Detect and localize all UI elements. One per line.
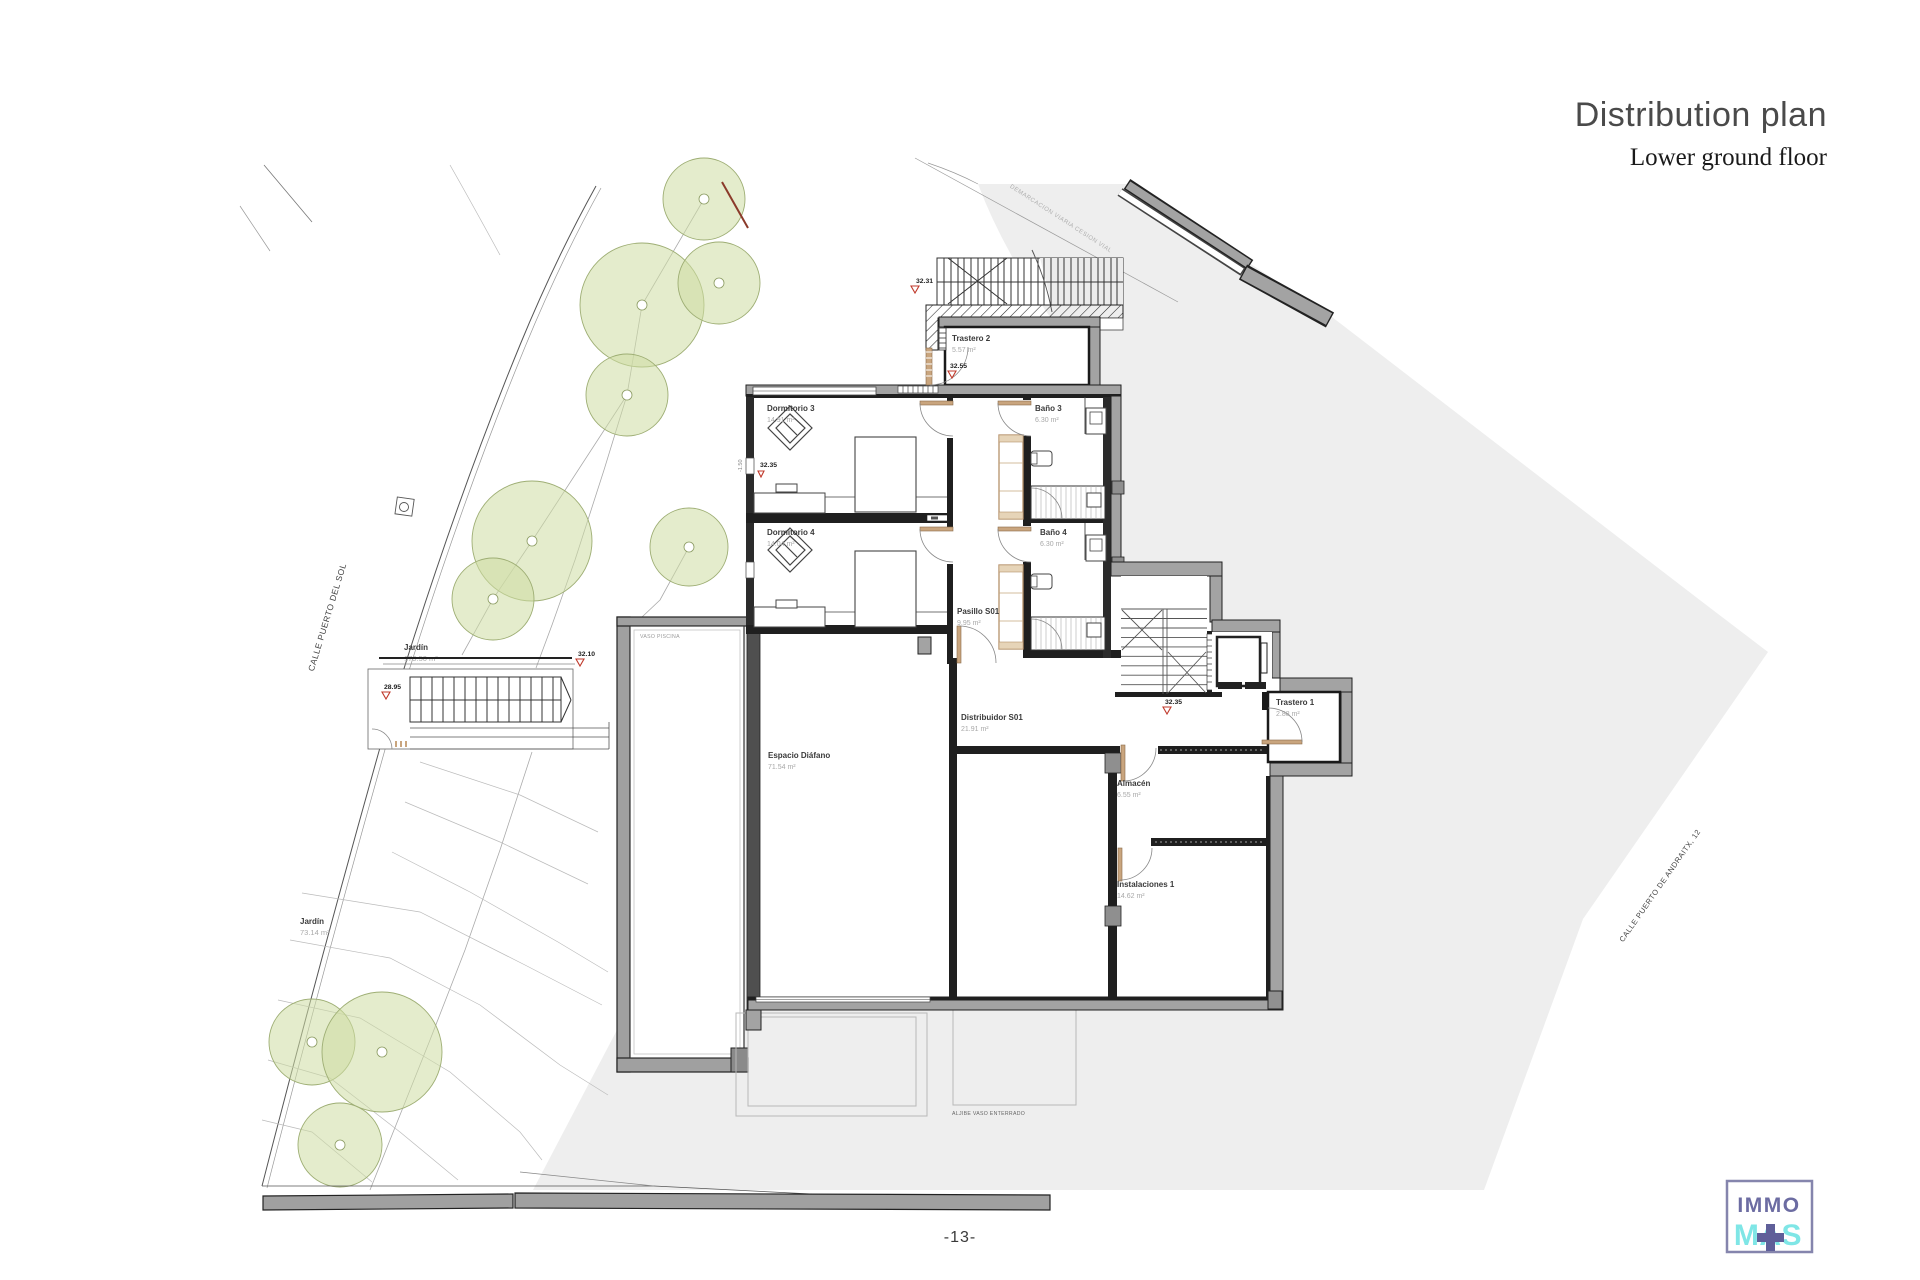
svg-text:32.55: 32.55 — [950, 363, 967, 370]
svg-text:32.35: 32.35 — [1165, 699, 1182, 706]
svg-text:6.30 m²: 6.30 m² — [1035, 417, 1059, 424]
svg-text:71.54 m²: 71.54 m² — [768, 764, 796, 771]
svg-text:2.88 m²: 2.88 m² — [1276, 711, 1300, 718]
svg-text:32.35: 32.35 — [760, 462, 777, 469]
svg-text:32.31: 32.31 — [916, 278, 933, 285]
svg-text:Distribuidor S01: Distribuidor S01 — [961, 713, 1023, 722]
svg-text:Espacio Diáfano: Espacio Diáfano — [768, 751, 830, 760]
svg-text:6.30 m²: 6.30 m² — [1040, 541, 1064, 548]
svg-text:Jardín: Jardín — [404, 643, 428, 652]
svg-text:5.57 m²: 5.57 m² — [952, 347, 976, 354]
svg-text:Baño 3: Baño 3 — [1035, 404, 1062, 413]
svg-text:Trastero 2: Trastero 2 — [952, 334, 991, 343]
svg-text:IMMO: IMMO — [1737, 1194, 1800, 1217]
svg-text:VASO PISCINA: VASO PISCINA — [640, 634, 680, 640]
svg-text:Almacén: Almacén — [1117, 779, 1150, 788]
svg-text:Instalaciones 1: Instalaciones 1 — [1117, 880, 1175, 889]
svg-text:32.10: 32.10 — [578, 651, 595, 658]
svg-text:Distribution plan: Distribution plan — [1575, 96, 1827, 134]
svg-text:73.14 m²: 73.14 m² — [300, 928, 330, 937]
svg-text:14.04 m²: 14.04 m² — [767, 541, 795, 548]
svg-text:6.55 m²: 6.55 m² — [1117, 792, 1141, 799]
svg-text:Baño 4: Baño 4 — [1040, 528, 1067, 537]
svg-text:14.62 m²: 14.62 m² — [1117, 893, 1145, 900]
svg-text:9.95 m²: 9.95 m² — [957, 620, 981, 627]
svg-text:CALLE PUERTO DEL SOL: CALLE PUERTO DEL SOL — [306, 562, 348, 672]
svg-text:-1.50: -1.50 — [738, 459, 744, 472]
svg-text:Pasillo S01: Pasillo S01 — [957, 607, 1000, 616]
svg-text:Dormitorio 4: Dormitorio 4 — [767, 528, 815, 537]
svg-text:ALJIBE VASO ENTERRADO: ALJIBE VASO ENTERRADO — [952, 1111, 1025, 1117]
svg-text:Lower ground floor: Lower ground floor — [1630, 144, 1828, 171]
svg-text:Trastero 1: Trastero 1 — [1276, 698, 1315, 707]
svg-text:-13-: -13- — [944, 1229, 976, 1246]
svg-text:Jardín: Jardín — [300, 917, 324, 926]
svg-text:21.91 m²: 21.91 m² — [961, 726, 989, 733]
svg-text:Dormitorio 3: Dormitorio 3 — [767, 404, 815, 413]
svg-text:14.91 m²: 14.91 m² — [767, 417, 795, 424]
svg-text:28.95: 28.95 — [384, 684, 401, 691]
